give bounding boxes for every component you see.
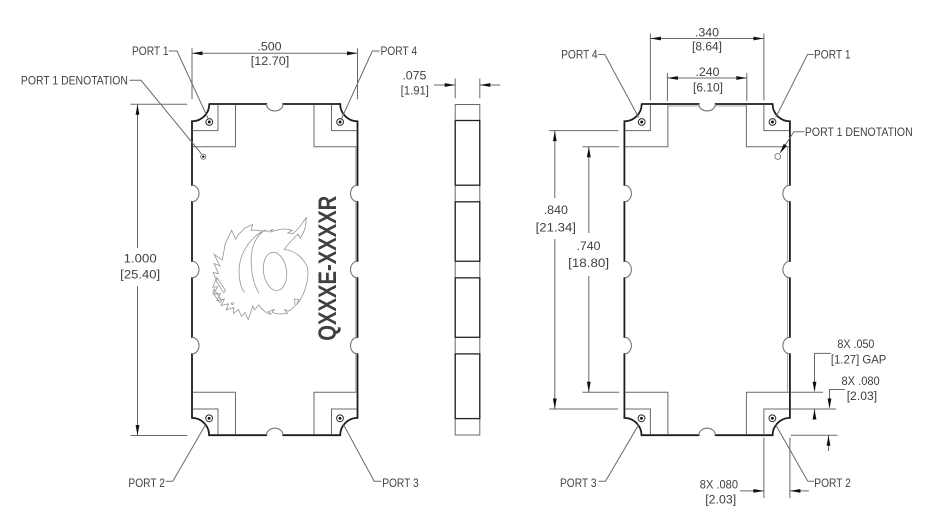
svg-text:PORT 4: PORT 4 <box>561 48 598 62</box>
svg-text:.740: .740 <box>576 239 600 253</box>
svg-text:PORT 2: PORT 2 <box>814 476 851 490</box>
svg-text:8X .050: 8X .050 <box>837 337 874 351</box>
svg-text:PORT 3: PORT 3 <box>560 476 597 490</box>
svg-text:PORT 1 DENOTATION: PORT 1 DENOTATION <box>21 74 128 88</box>
svg-text:[6.10]: [6.10] <box>693 80 723 94</box>
svg-text:PORT 2: PORT 2 <box>128 476 165 490</box>
svg-text:1.000: 1.000 <box>124 251 157 265</box>
svg-text:[25.40]: [25.40] <box>120 268 160 282</box>
svg-text:[18.80]: [18.80] <box>568 256 609 270</box>
svg-text:PORT 1 DENOTATION: PORT 1 DENOTATION <box>805 125 913 139</box>
svg-text:PORT 4: PORT 4 <box>381 44 418 58</box>
svg-text:PORT 3: PORT 3 <box>382 476 419 490</box>
svg-text:[21.34]: [21.34] <box>536 220 576 234</box>
svg-text:.500: .500 <box>257 40 281 54</box>
svg-text:PORT 1: PORT 1 <box>132 44 169 58</box>
svg-text:[1.27] GAP: [1.27] GAP <box>831 352 887 366</box>
svg-text:.240: .240 <box>695 65 719 79</box>
svg-text:[2.03]: [2.03] <box>705 493 736 507</box>
svg-text:[8.64]: [8.64] <box>692 39 722 53</box>
svg-text:.075: .075 <box>402 69 426 83</box>
svg-text:.340: .340 <box>695 25 719 39</box>
svg-text:[12.70]: [12.70] <box>251 54 290 68</box>
svg-text:.840: .840 <box>544 203 568 217</box>
svg-text:[2.03]: [2.03] <box>847 389 877 403</box>
svg-text:8X .080: 8X .080 <box>841 374 879 388</box>
svg-text:[1.91]: [1.91] <box>401 84 429 98</box>
svg-text:QXXXE-XXXXR: QXXXE-XXXXR <box>314 196 342 341</box>
svg-text:PORT 1: PORT 1 <box>814 48 851 62</box>
svg-text:8X .080: 8X .080 <box>700 477 738 491</box>
